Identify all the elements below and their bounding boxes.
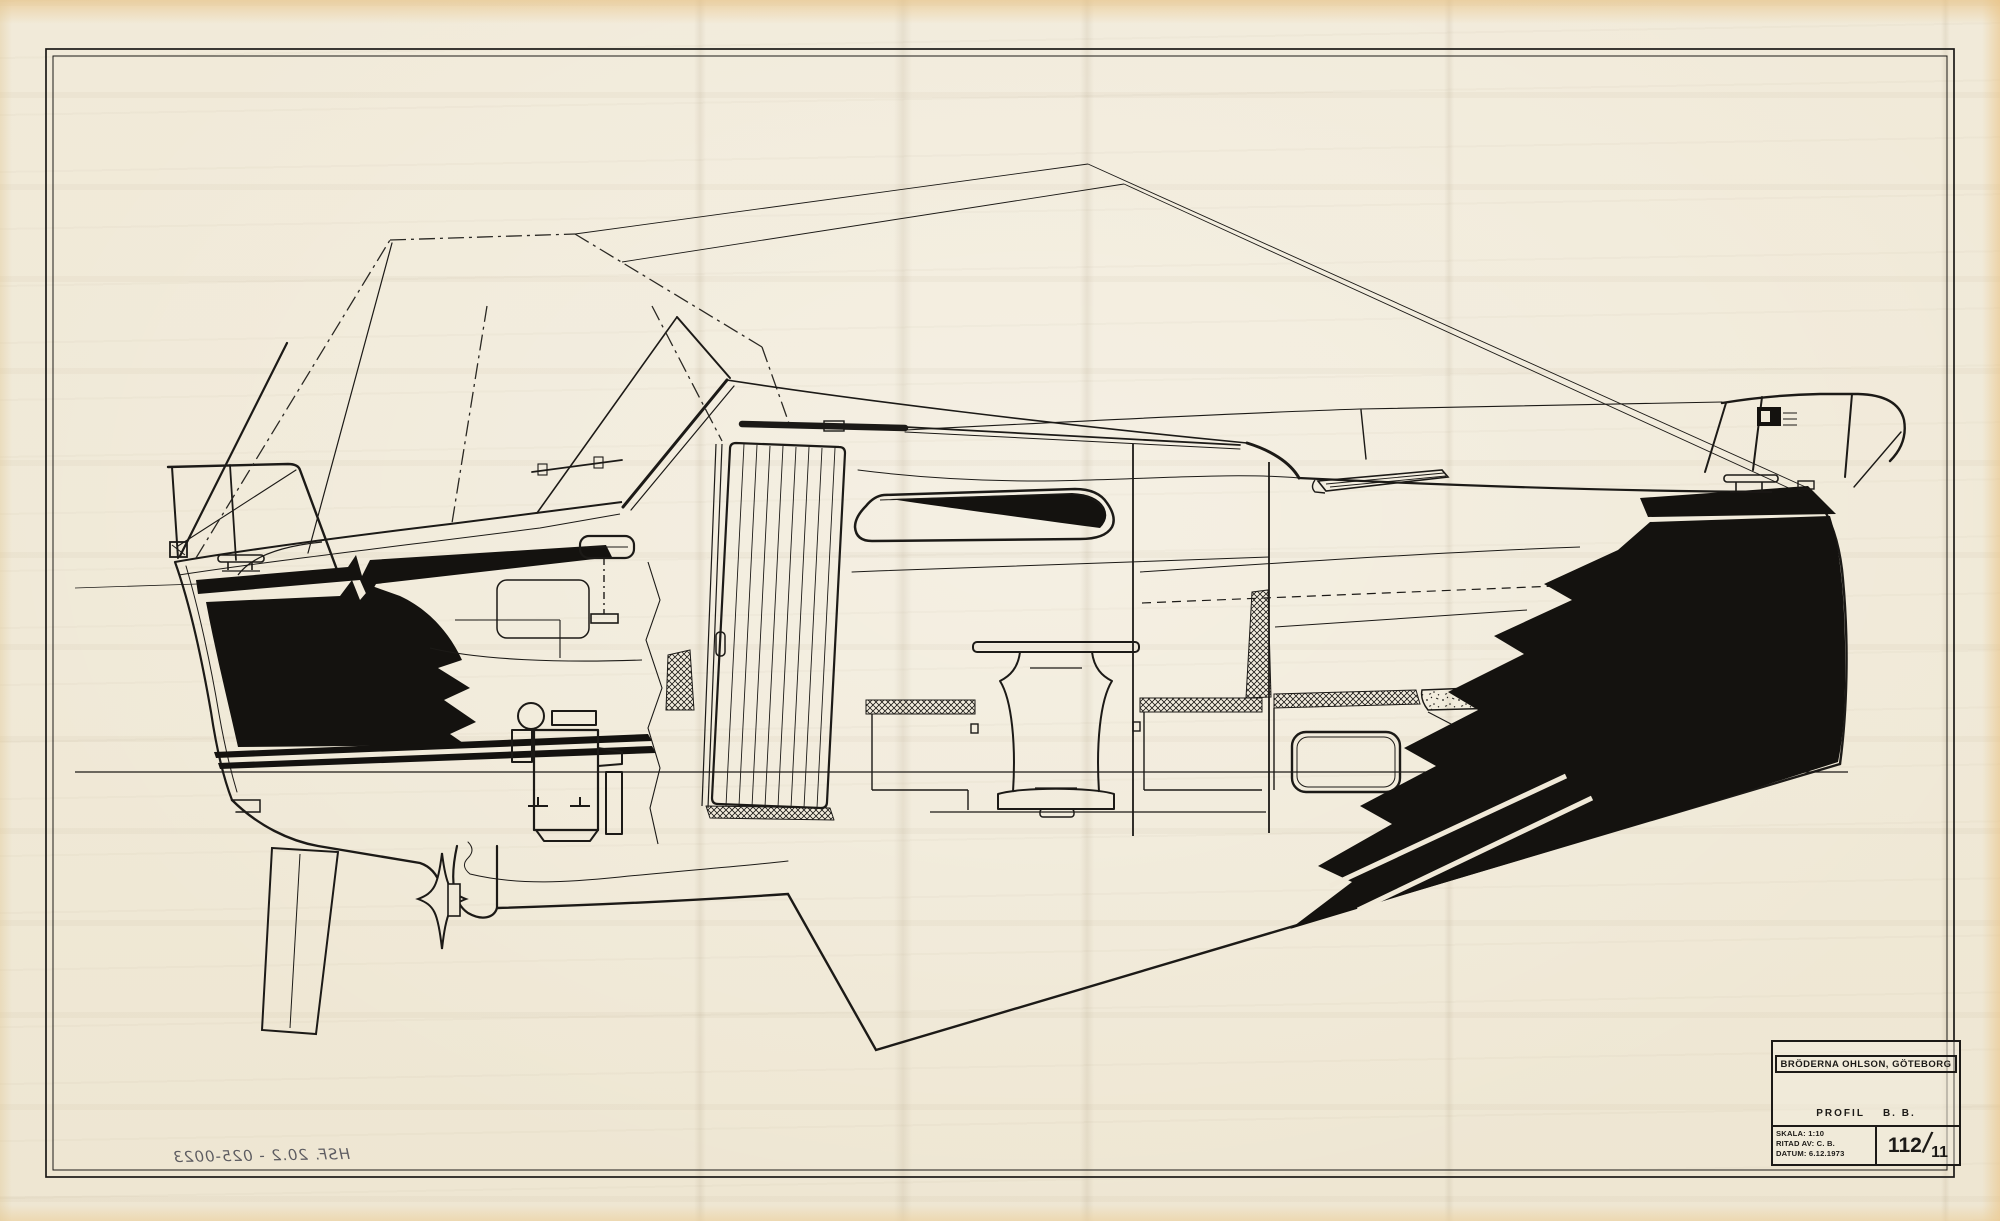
drawn-by-row: RITAD AV: C. B. [1776,1139,1875,1149]
forestay-lines [575,164,1815,500]
windshield [532,317,734,513]
boat-profile-drawing [0,0,2000,1221]
rudder [262,848,338,1034]
title-block-view: PROFIL B. B. [1773,1108,1959,1119]
cabin-side-window [855,489,1114,541]
scale-value: 1:10 [1808,1129,1824,1138]
bow-navigation-light [1757,407,1797,426]
bow-pulpit-rail [1705,394,1905,487]
under-berth-locker [1292,732,1400,792]
stern-flag-staff [180,243,392,556]
date-value: 6.12.1973 [1809,1149,1845,1158]
scale-row: SKALA: 1:10 [1776,1129,1875,1139]
title-block-company: BRÖDERNA OHLSON, GÖTEBORG [1775,1055,1957,1073]
sheet-number: 112 / 11 [1877,1127,1959,1164]
sheet-number-main: 112 [1888,1134,1922,1158]
date-label: DATUM: [1776,1149,1807,1158]
title-block-meta: SKALA: 1:10 RITAD AV: C. B. DATUM: 6.12.… [1773,1127,1877,1164]
sheet-number-sub: 11 [1931,1144,1948,1162]
canvas-top-outline [196,234,791,558]
drawing-sheet: BRÖDERNA OHLSON, GÖTEBORG PROFIL B. B. S… [0,0,2000,1221]
date-row: DATUM: 6.12.1973 [1776,1149,1875,1159]
companionway-door [702,443,845,820]
title-block-bottom: SKALA: 1:10 RITAD AV: C. B. DATUM: 6.12.… [1773,1125,1959,1164]
cockpit-structures [430,562,662,844]
view-side: B. B. [1883,1108,1916,1119]
stern-underbody-shading [196,545,656,769]
drawn-by-value: C. B. [1817,1139,1835,1148]
salon-table [973,642,1139,817]
propeller [418,853,466,949]
drawn-by-label: RITAD AV: [1776,1139,1814,1148]
scale-label: SKALA: [1776,1129,1806,1138]
title-block: BRÖDERNA OHLSON, GÖTEBORG PROFIL B. B. S… [1771,1040,1961,1166]
view-label: PROFIL [1816,1108,1865,1119]
bow-underbody-shading [1290,486,1845,929]
